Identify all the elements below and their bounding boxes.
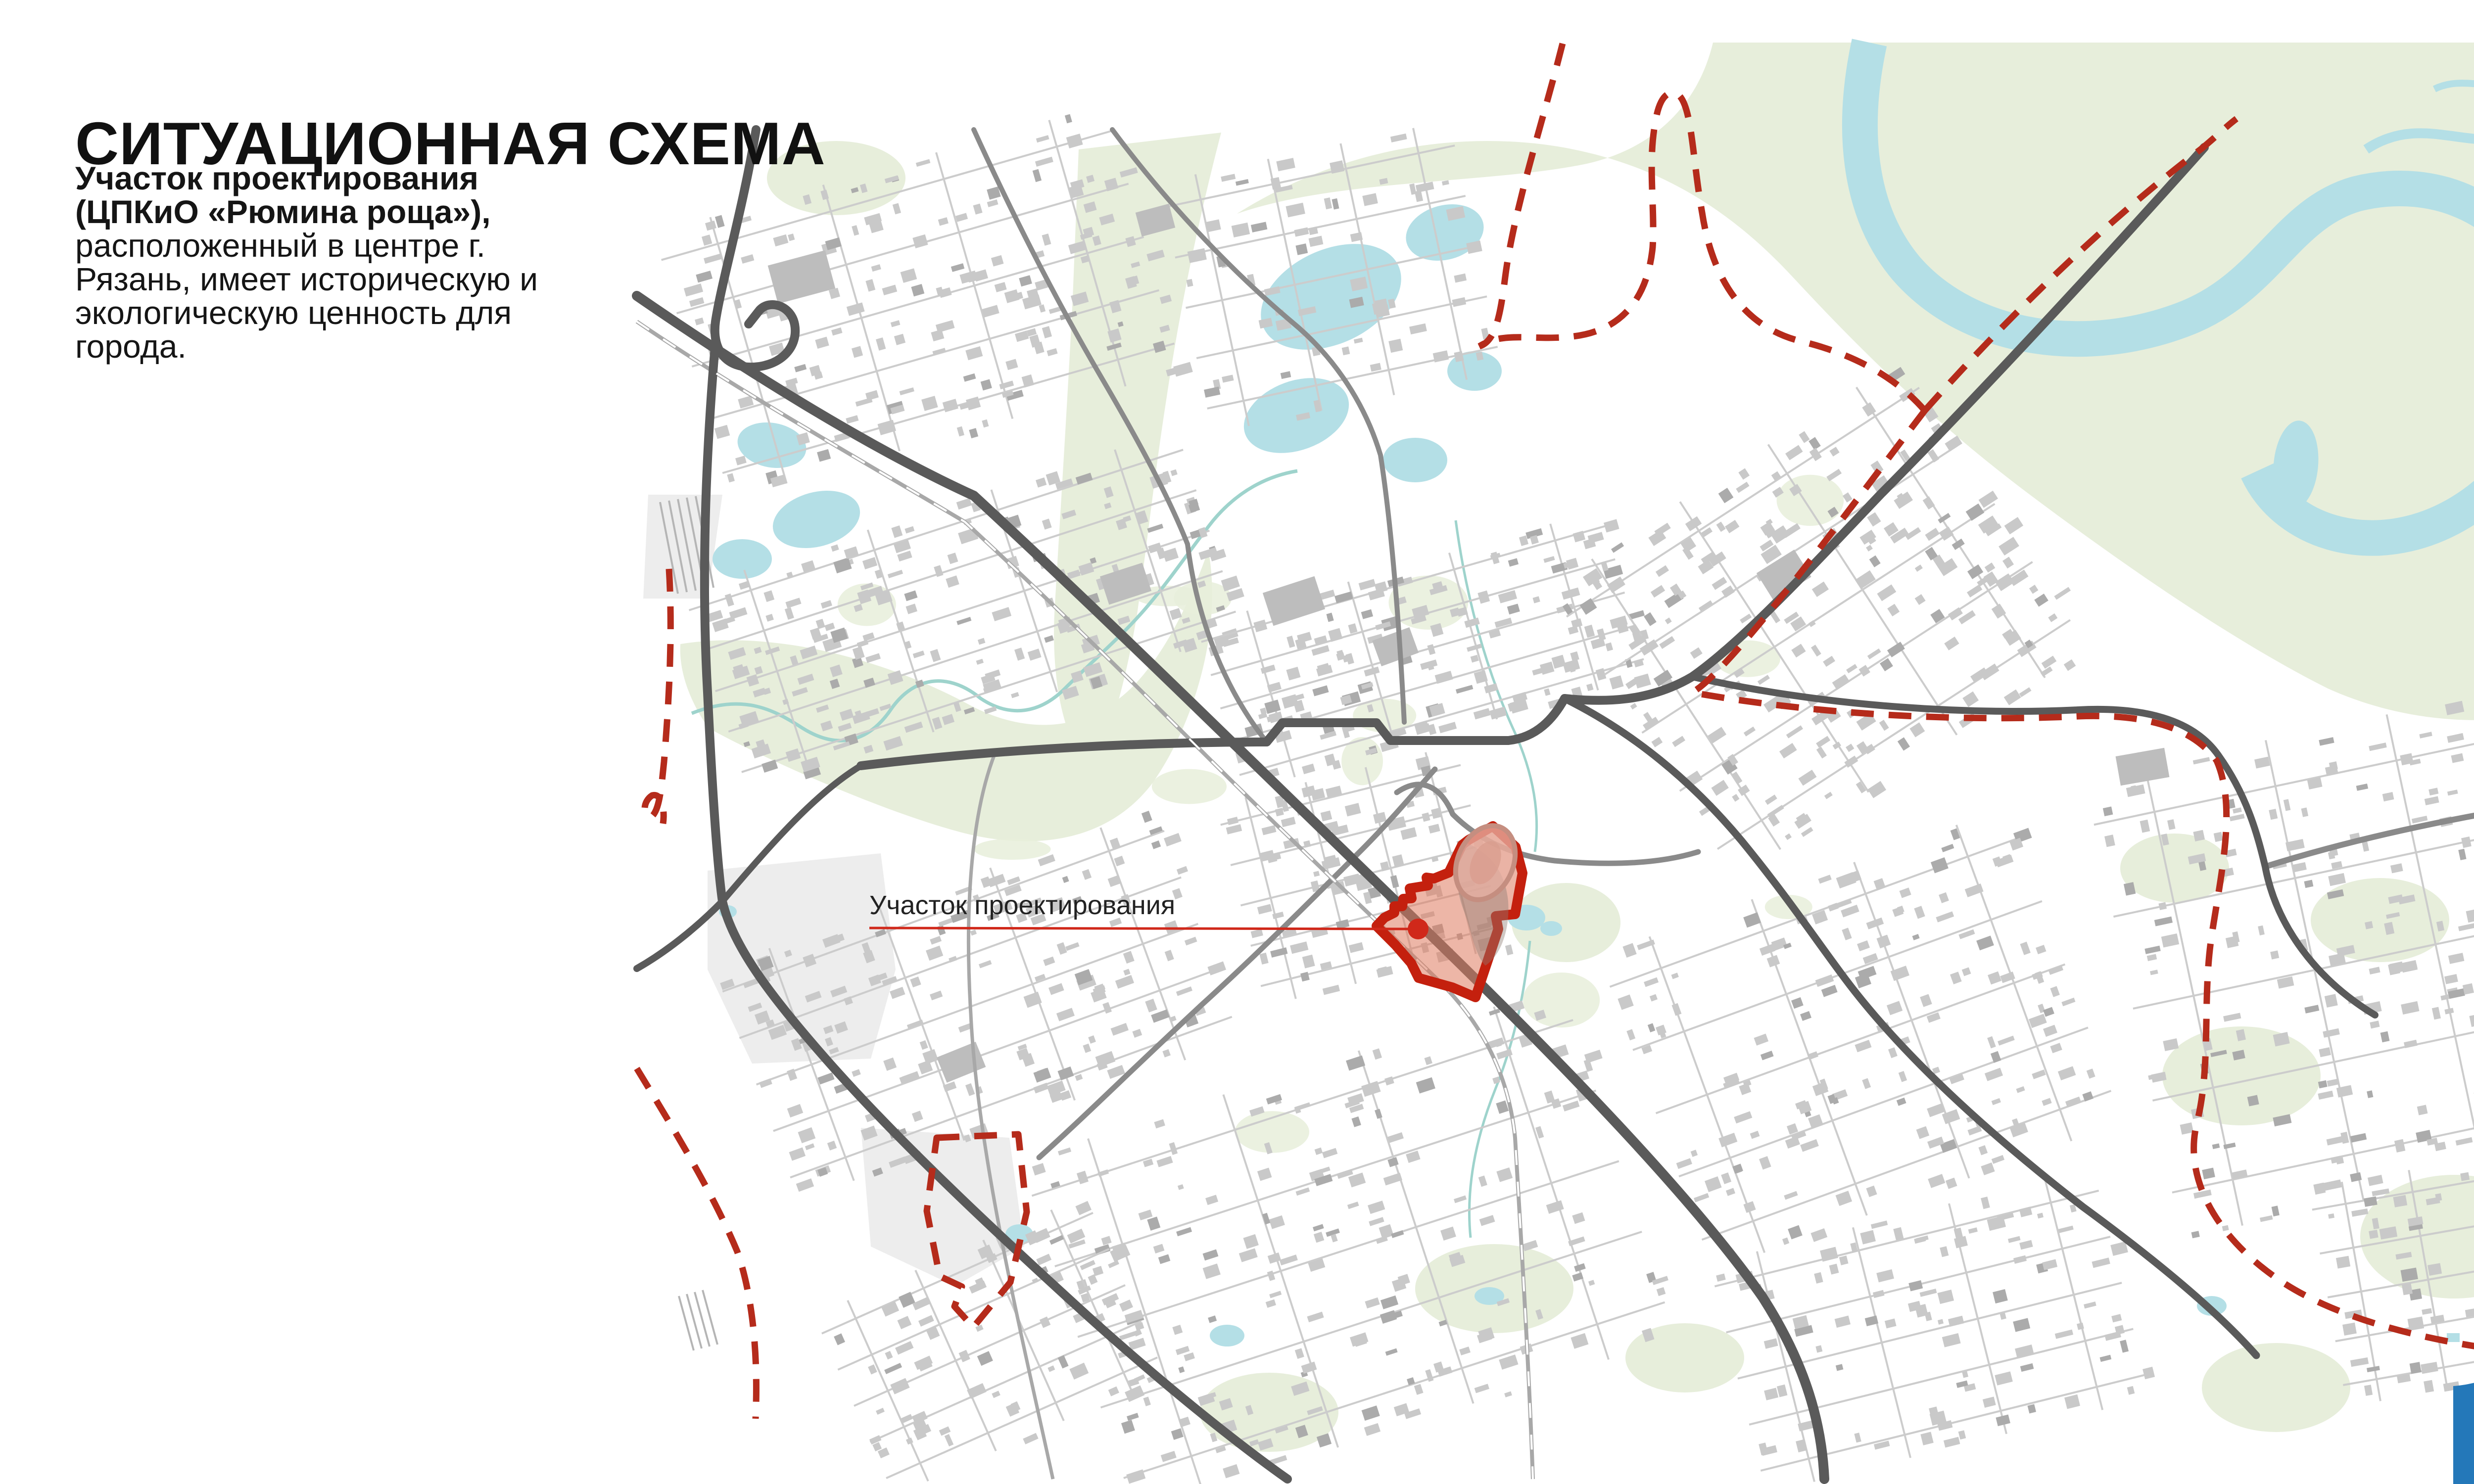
intro-line: (ЦПКиО «Рюмина роща»), [75,195,538,229]
site-callout: Участок проектирования [869,890,1428,939]
leader-line [869,928,1418,929]
badge-wave-shape [2453,1359,2474,1484]
leader-dot [1408,919,1428,939]
page-badge: 1 [2453,1359,2474,1484]
intro-line: города. [75,329,538,363]
intro-paragraph: Участок проектирования (ЦПКиО «Рюмина ро… [75,161,538,363]
intro-line: расположенный в центре г. [75,229,538,262]
site-label: Участок проектирования [869,890,1175,920]
intro-line: Участок проектирования [75,161,538,195]
intro-line: экологическую ценность для [75,296,538,329]
design-site [1377,816,1526,997]
intro-line: Рязань, имеет историческую и [75,262,538,296]
